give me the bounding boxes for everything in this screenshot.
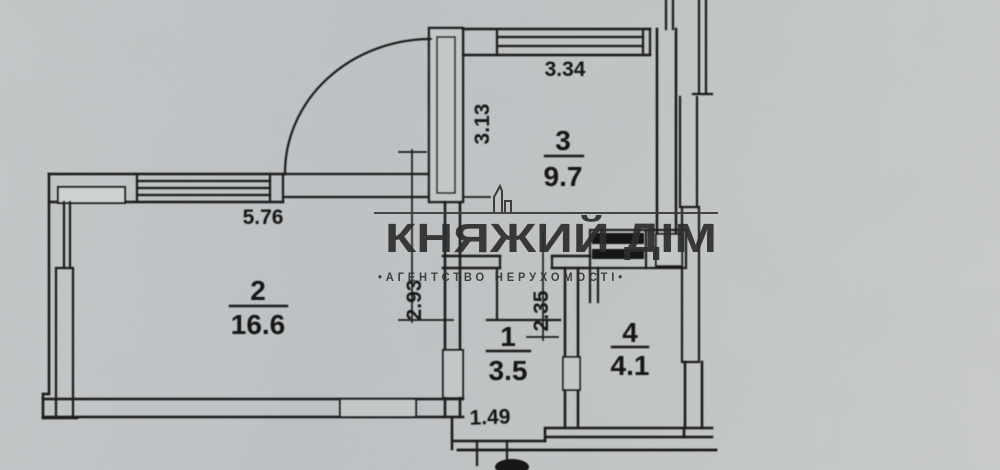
room-1-number: 1 xyxy=(500,321,516,352)
room-1-area: 3.5 xyxy=(489,355,528,386)
room-2-area: 16.6 xyxy=(231,309,286,340)
window-sill-top-left xyxy=(58,187,125,203)
door-leaf xyxy=(429,28,463,202)
dim-room3-width: 3.34 xyxy=(545,58,586,81)
room-3-area: 9.7 xyxy=(544,161,583,192)
room-4-number: 4 xyxy=(622,317,638,348)
room-3-number: 3 xyxy=(555,125,571,156)
watermark-subtitle: •АГЕНТСТВО НЕРУХОМОСТІ• xyxy=(378,272,626,284)
door-room4 xyxy=(563,357,580,390)
floorplan-scan: 5.76 3.34 3.13 2.93 2.35 1.49 2 16.6 1 3… xyxy=(0,0,1000,470)
floorplan-svg: 5.76 3.34 3.13 2.93 2.35 1.49 2 16.6 1 3… xyxy=(0,0,1000,470)
dim-corridor-depth: 2.93 xyxy=(403,280,426,321)
dim-hall-width: 1.49 xyxy=(469,405,511,429)
room-2-number: 2 xyxy=(250,275,266,306)
opening-bottom-room2 xyxy=(340,399,416,417)
dim-room3-depth: 3.13 xyxy=(471,104,494,145)
door-room2-hall xyxy=(443,350,463,398)
dim-hall-depth: 2.35 xyxy=(530,290,553,331)
room-4-area: 4.1 xyxy=(611,350,650,381)
watermark-title: КНЯЖИЙ ДІМ xyxy=(385,215,717,261)
dim-room2-width: 5.76 xyxy=(243,206,284,229)
